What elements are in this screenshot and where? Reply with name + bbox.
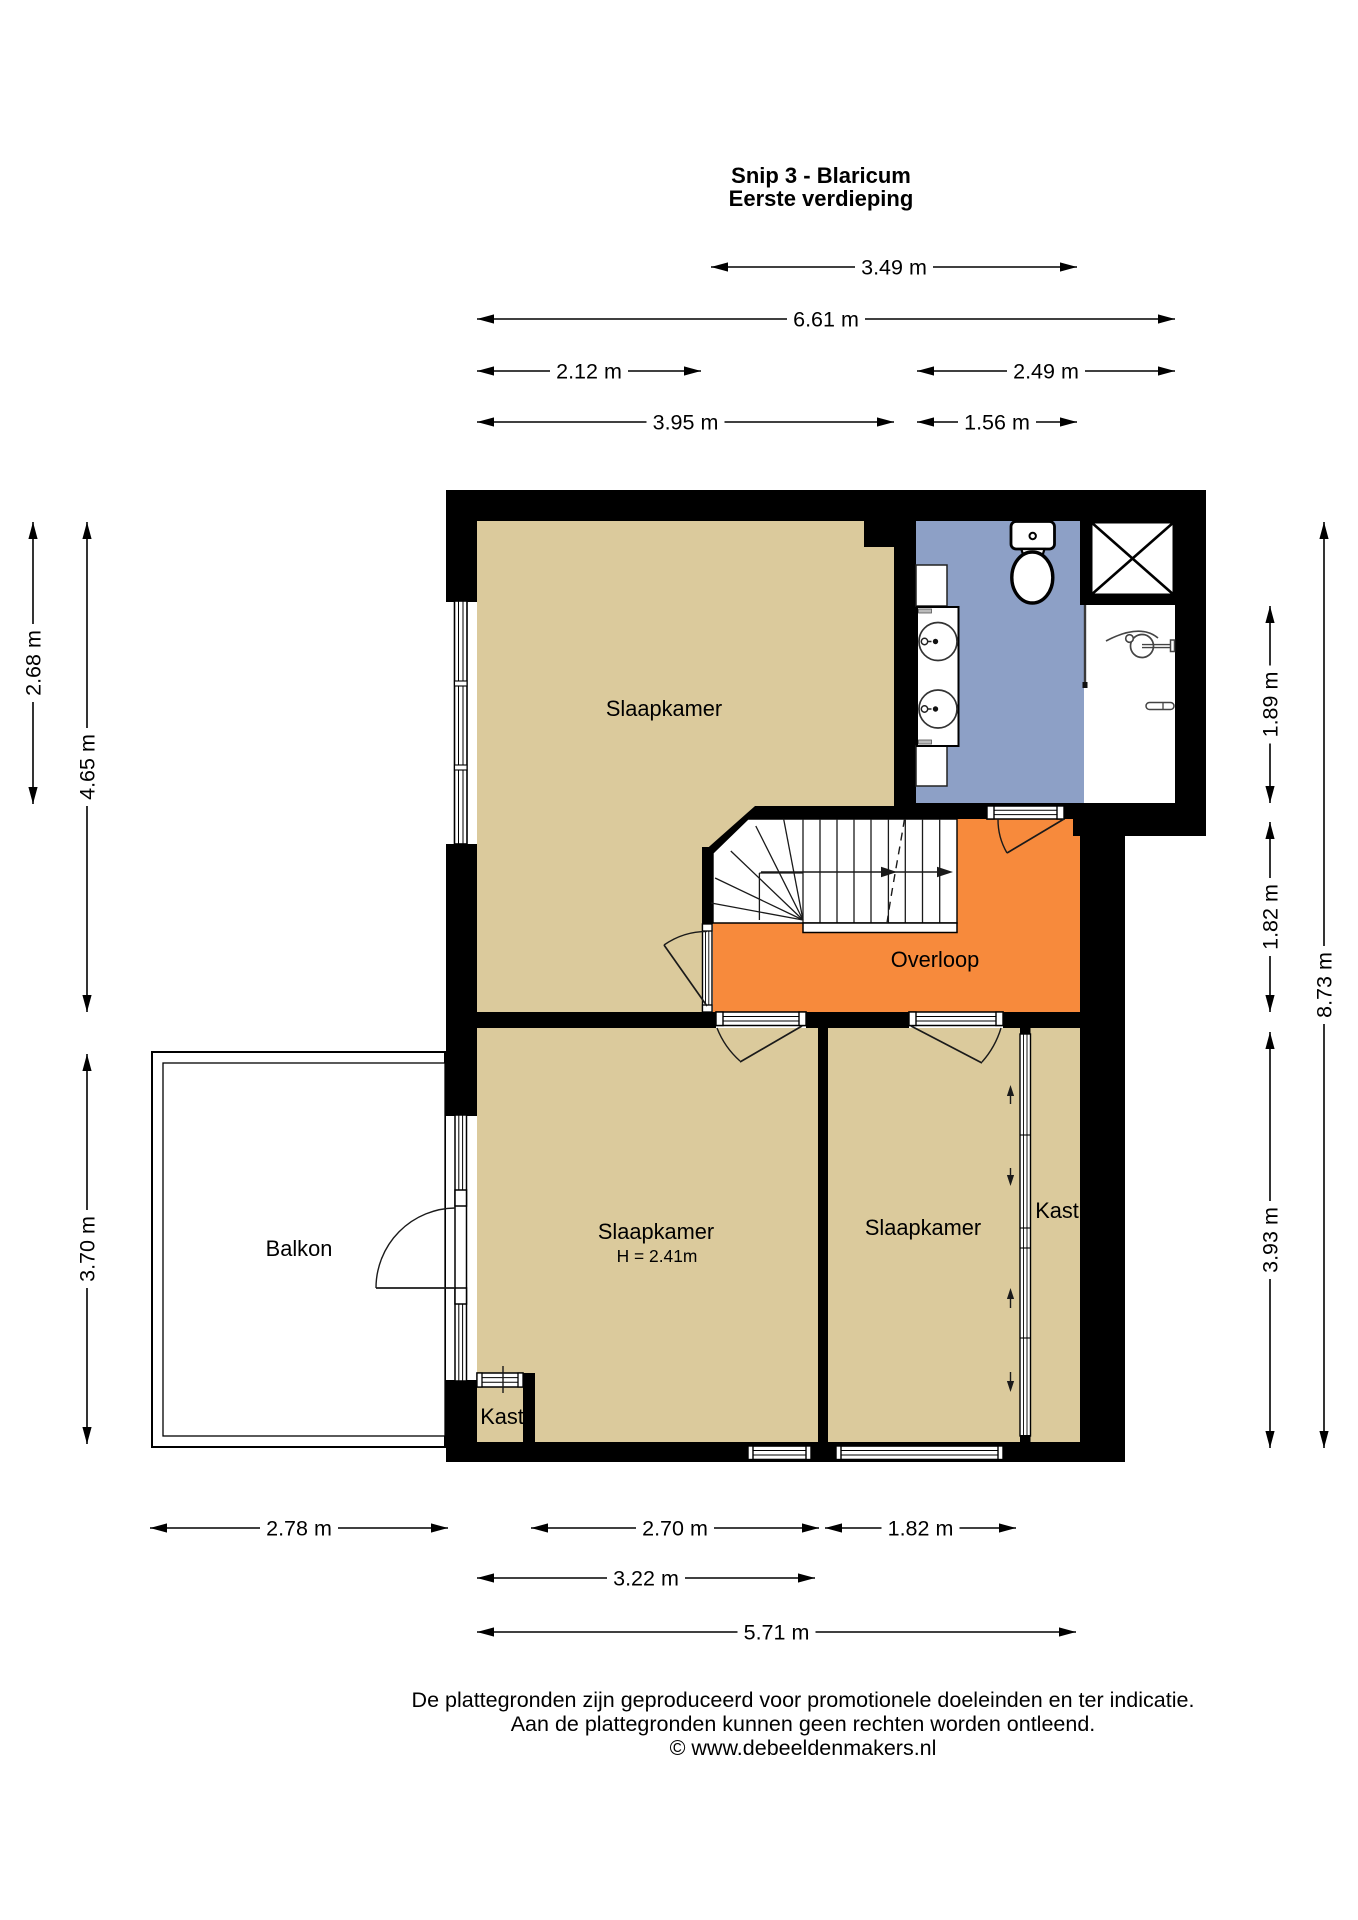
svg-text:Snip 3 - Blaricum: Snip 3 - Blaricum bbox=[731, 163, 911, 188]
svg-text:1.82 m: 1.82 m bbox=[1259, 884, 1283, 950]
svg-text:5.71 m: 5.71 m bbox=[744, 1621, 810, 1645]
svg-text:3.95 m: 3.95 m bbox=[653, 411, 719, 435]
svg-text:1.56 m: 1.56 m bbox=[964, 411, 1030, 435]
svg-text:3.93 m: 3.93 m bbox=[1259, 1207, 1283, 1273]
svg-text:Aan de plattegronden kunnen ge: Aan de plattegronden kunnen geen rechten… bbox=[511, 1712, 1096, 1736]
svg-text:Slaapkamer: Slaapkamer bbox=[606, 696, 722, 721]
svg-text:2.68 m: 2.68 m bbox=[22, 630, 46, 696]
svg-text:1.82 m: 1.82 m bbox=[888, 1517, 954, 1541]
svg-text:8.73 m: 8.73 m bbox=[1313, 952, 1337, 1018]
svg-text:Slaapkamer: Slaapkamer bbox=[865, 1215, 981, 1240]
svg-text:2.70 m: 2.70 m bbox=[642, 1517, 708, 1541]
svg-text:© www.debeeldenmakers.nl: © www.debeeldenmakers.nl bbox=[670, 1736, 937, 1760]
svg-text:3.70 m: 3.70 m bbox=[76, 1216, 100, 1282]
svg-text:Overloop: Overloop bbox=[891, 947, 979, 972]
svg-text:De plattegronden zijn geproduc: De plattegronden zijn geproduceerd voor … bbox=[412, 1688, 1195, 1712]
svg-text:H = 2.41m: H = 2.41m bbox=[617, 1246, 698, 1266]
svg-text:Kast: Kast bbox=[480, 1404, 524, 1429]
svg-text:Slaapkamer: Slaapkamer bbox=[598, 1219, 714, 1244]
svg-text:4.65 m: 4.65 m bbox=[76, 734, 100, 800]
svg-text:1.89 m: 1.89 m bbox=[1259, 672, 1283, 738]
svg-text:2.49 m: 2.49 m bbox=[1013, 360, 1079, 384]
svg-text:6.61 m: 6.61 m bbox=[793, 308, 859, 332]
svg-text:3.49 m: 3.49 m bbox=[861, 256, 927, 280]
svg-text:2.12 m: 2.12 m bbox=[556, 360, 622, 384]
svg-text:2.78 m: 2.78 m bbox=[266, 1517, 332, 1541]
svg-text:3.22 m: 3.22 m bbox=[613, 1567, 679, 1591]
svg-text:Balkon: Balkon bbox=[266, 1236, 333, 1261]
svg-text:Kast: Kast bbox=[1035, 1198, 1079, 1223]
svg-text:Eerste verdieping: Eerste verdieping bbox=[729, 186, 914, 211]
